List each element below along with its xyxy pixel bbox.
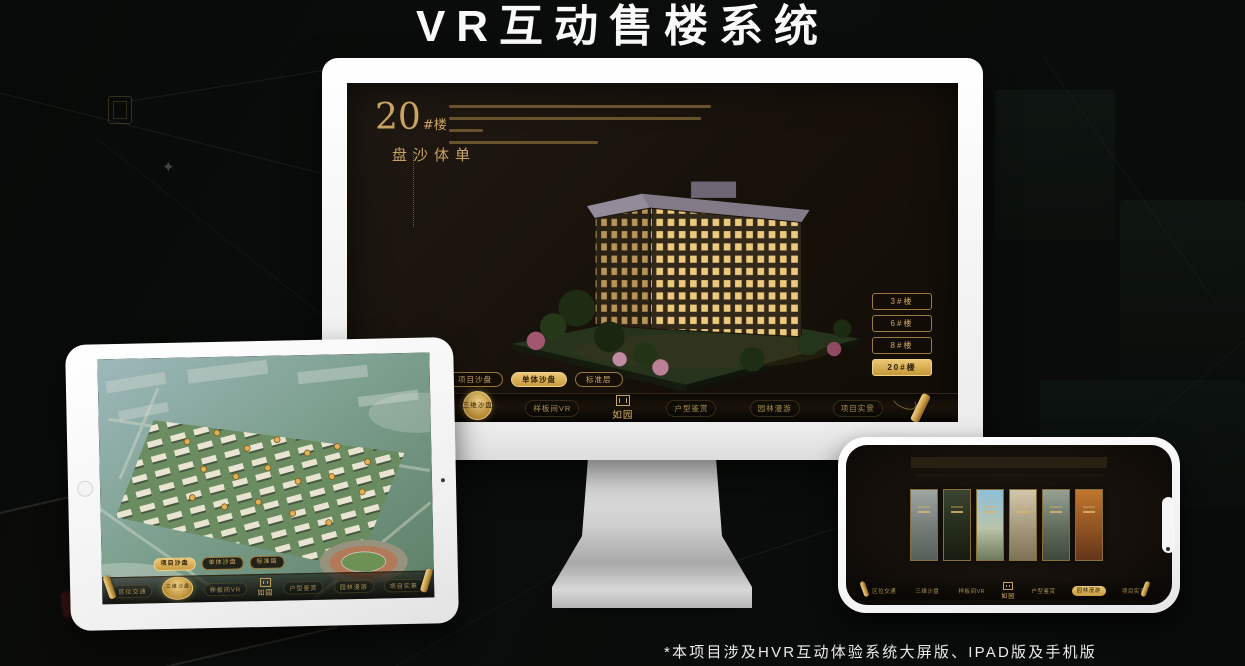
phone-nav-item-floorplans[interactable]: 户型鉴赏: [1028, 586, 1058, 596]
phone-nav-item-location[interactable]: 区位交通: [869, 586, 899, 596]
monitor-stand: [552, 458, 752, 608]
nav-item-garden-tour[interactable]: 园林漫游: [750, 400, 800, 417]
building-button-20[interactable]: 20#楼: [872, 359, 932, 376]
building-button-3[interactable]: 3#楼: [872, 293, 932, 310]
building-render: [495, 155, 877, 395]
unit-subtitle-ornament: [413, 151, 414, 227]
unit-number-suffix: #楼: [423, 118, 447, 133]
scene-panel-1[interactable]: [910, 489, 938, 561]
phone-notch: [1162, 497, 1175, 553]
unit-title-block: 20#楼 单体沙盘: [375, 99, 447, 145]
tablet-sandbox-submenu: 项目沙盘 单体沙盘 标准层: [154, 556, 285, 572]
footnote: *本项目涉及HVR互动体验系统大屏版、IPAD版及手机版: [664, 641, 1097, 662]
tablet-nav-item-location[interactable]: 区位交通: [112, 584, 152, 598]
phone-device: 区位交通 三维沙盘 样板间VR 如园 户型鉴赏 园林漫游 项目实景: [838, 437, 1180, 613]
tablet-nav-item-showroom-vr[interactable]: 样板间VR: [204, 582, 248, 596]
sandbox-submenu: 项目沙盘 单体沙盘 标准层: [447, 372, 623, 387]
tablet-submenu-project-sandbox[interactable]: 项目沙盘: [154, 557, 196, 571]
tablet-nav-item-floorplans[interactable]: 户型鉴赏: [283, 580, 323, 594]
gate-silhouette: [911, 457, 1107, 468]
phone-nav-item-3d-sandbox[interactable]: 三维沙盘: [912, 586, 942, 596]
scene-gallery: [910, 489, 1103, 561]
brand-seal-icon: [616, 395, 630, 406]
nav-item-showroom-vr[interactable]: 样板间VR: [525, 400, 579, 417]
phone-brand-seal-icon: [1003, 582, 1013, 590]
scene-panel-4[interactable]: [1009, 489, 1037, 561]
submenu-project-sandbox[interactable]: 项目沙盘: [447, 372, 503, 387]
tablet-submenu-single-sandbox[interactable]: 单体沙盘: [202, 556, 244, 570]
tablet-brand-logo: 如园: [257, 578, 273, 598]
scene-panel-2[interactable]: [943, 489, 971, 561]
tablet-navbar: 区位交通 三维沙盘 样板间VR 如园 户型鉴赏 园林漫游 项目实景: [102, 570, 434, 604]
unit-number: 20#楼: [375, 99, 447, 145]
scene-panel-5[interactable]: [1042, 489, 1070, 561]
phone-nav-item-garden-tour[interactable]: 园林漫游: [1072, 586, 1106, 595]
scene-panel-3[interactable]: [976, 489, 1004, 561]
stage: ✦ VR互动售楼系统 20#楼 单体沙盘: [0, 0, 1245, 666]
compass-star-icon: ✦: [162, 158, 175, 176]
map-marker-icon: [108, 96, 132, 124]
description-paragraph: [449, 105, 711, 153]
page-title: VR互动售楼系统: [0, 0, 1245, 54]
tablet-device: 项目沙盘 单体沙盘 标准层 区位交通 三维沙盘 样板间VR 如园 户型鉴赏 园林…: [65, 337, 459, 631]
building-button-6[interactable]: 6#楼: [872, 315, 932, 332]
brand-logo: 如园: [612, 395, 633, 421]
tablet-nav-item-project-photos[interactable]: 项目实景: [384, 578, 424, 592]
scene-panel-6[interactable]: [1075, 489, 1103, 561]
phone-screen: 区位交通 三维沙盘 样板间VR 如园 户型鉴赏 园林漫游 项目实景: [846, 445, 1172, 605]
nav-item-project-photos[interactable]: 项目实景: [833, 400, 883, 417]
nav-item-floorplans[interactable]: 户型鉴赏: [666, 400, 716, 417]
phone-camera-icon: [1166, 547, 1170, 551]
phone-brand-logo: 如园: [1001, 582, 1015, 600]
phone-nav-item-showroom-vr[interactable]: 样板间VR: [956, 586, 989, 596]
tablet-nav-item-3d-sandbox[interactable]: 三维沙盘: [162, 576, 193, 600]
building-selector: 3#楼 6#楼 8#楼 20#楼: [872, 293, 932, 376]
scroll-ornament-icon[interactable]: [910, 393, 931, 422]
building-button-8[interactable]: 8#楼: [872, 337, 932, 354]
tablet-brand-seal-icon: [260, 578, 271, 587]
submenu-single-sandbox[interactable]: 单体沙盘: [511, 372, 567, 387]
phone-navbar: 区位交通 三维沙盘 样板间VR 如园 户型鉴赏 园林漫游 项目实景: [856, 582, 1162, 600]
tablet-nav-item-garden-tour[interactable]: 园林漫游: [334, 579, 374, 593]
tablet-home-button[interactable]: [77, 481, 93, 497]
tablet-camera-icon: [441, 478, 445, 482]
submenu-standard-floor[interactable]: 标准层: [575, 372, 623, 387]
tablet-screen: 项目沙盘 单体沙盘 标准层 区位交通 三维沙盘 样板间VR 如园 户型鉴赏 园林…: [97, 352, 434, 604]
nav-item-3d-sandbox[interactable]: 三维沙盘: [463, 391, 492, 420]
tablet-submenu-standard-floor[interactable]: 标准层: [250, 556, 285, 570]
